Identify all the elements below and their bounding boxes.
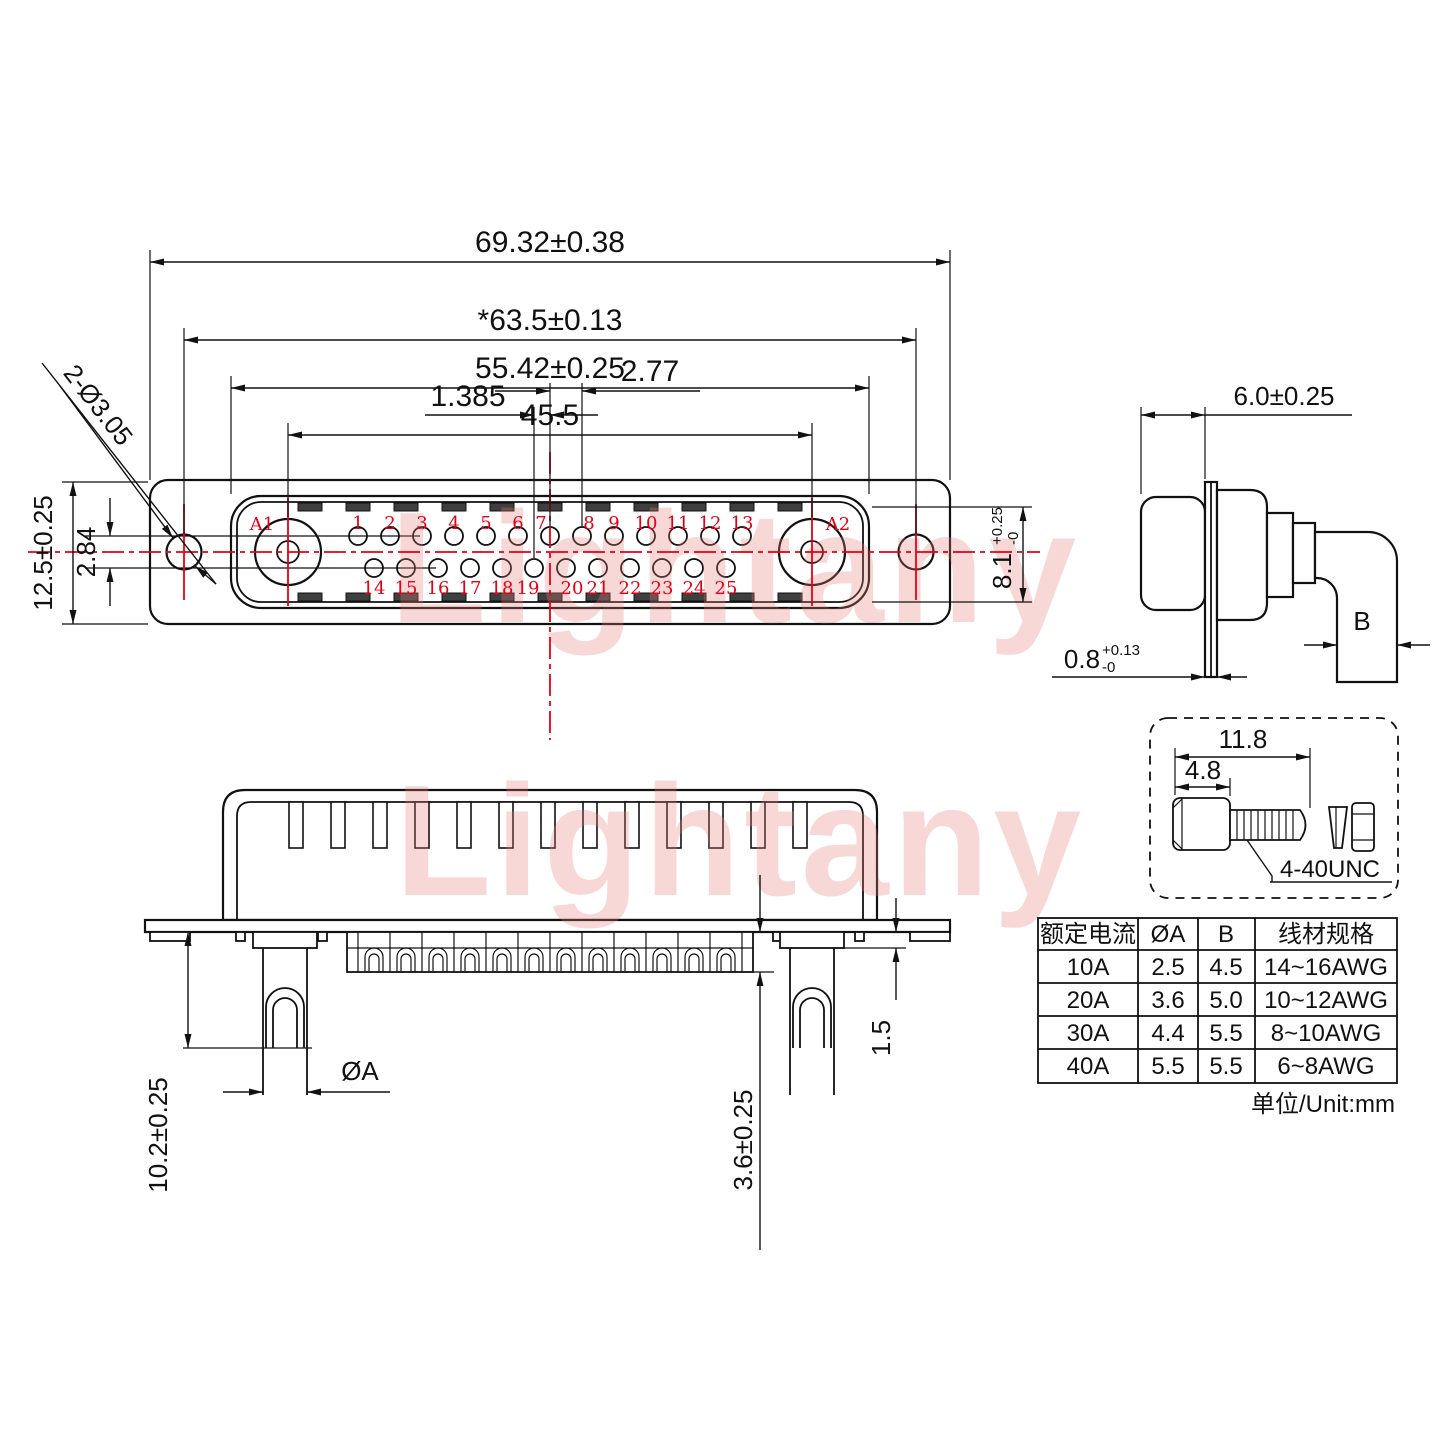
svg-text:18: 18 xyxy=(491,578,514,599)
svg-text:A1: A1 xyxy=(249,514,274,535)
dim-flange-height: 12.5±0.25 xyxy=(28,495,58,610)
svg-text:11: 11 xyxy=(667,513,690,534)
dim-pin-diameter: ØA xyxy=(341,1056,379,1086)
technical-drawing-page: Lightany A1 A2 1 2 3 4 5 6 7 8 9 10 11 1… xyxy=(0,0,1440,1440)
screw-detail: 11.8 4.8 4-40UNC xyxy=(1150,718,1398,898)
svg-text:20: 20 xyxy=(561,578,584,599)
svg-text:6: 6 xyxy=(512,513,523,534)
dim-mount-hole-span: *63.5±0.13 xyxy=(478,304,623,337)
bottom-view: Lightany 10.2±0.25 ØA 3.6±0.25 xyxy=(143,753,1085,1250)
svg-text:3: 3 xyxy=(416,513,427,534)
svg-text:5.5: 5.5 xyxy=(1209,1020,1242,1047)
dim-terminal-width: B xyxy=(1353,606,1370,636)
dim-overall-width: 69.32±0.38 xyxy=(475,226,625,259)
svg-text:5.0: 5.0 xyxy=(1209,987,1242,1014)
svg-text:21: 21 xyxy=(587,578,610,599)
svg-text:1: 1 xyxy=(352,513,363,534)
svg-text:15: 15 xyxy=(395,578,418,599)
svg-text:5.5: 5.5 xyxy=(1209,1053,1242,1080)
screw-geometry xyxy=(1173,798,1374,851)
barrel-part xyxy=(1352,803,1374,851)
svg-text:10: 10 xyxy=(635,513,658,534)
side-view-geometry xyxy=(1141,482,1397,682)
dim-row-stagger: 1.385 xyxy=(430,380,505,413)
svg-text:22: 22 xyxy=(619,578,642,599)
svg-text:5.5: 5.5 xyxy=(1151,1053,1184,1080)
svg-text:19: 19 xyxy=(517,578,540,599)
spec-table: 额定电流 ØA B 线材规格 10A 2.5 4.5 14~16AWG 20A … xyxy=(1038,918,1397,1118)
dim-shoulder: 1.5 xyxy=(866,1020,896,1056)
svg-text:20A: 20A xyxy=(1067,987,1110,1014)
svg-text:40A: 40A xyxy=(1067,1053,1110,1080)
svg-text:A2: A2 xyxy=(825,514,850,535)
svg-text:0.8: 0.8 xyxy=(1064,644,1100,674)
dim-screw-head: 4.8 xyxy=(1185,755,1221,785)
svg-text:14: 14 xyxy=(363,578,386,599)
svg-text:2: 2 xyxy=(384,513,395,534)
dim-row-gap: 2.84 xyxy=(71,527,101,578)
dim-pin-pitch: 2.77 xyxy=(621,355,679,388)
svg-text:8.1: 8.1 xyxy=(987,553,1017,589)
connector-drawing: Lightany A1 A2 1 2 3 4 5 6 7 8 9 10 11 1… xyxy=(0,0,1440,1440)
svg-text:10A: 10A xyxy=(1067,954,1110,981)
svg-text:30A: 30A xyxy=(1067,1020,1110,1047)
svg-text:17: 17 xyxy=(459,578,482,599)
rivet-part xyxy=(1329,807,1347,848)
svg-text:线材规格: 线材规格 xyxy=(1278,921,1374,948)
svg-text:16: 16 xyxy=(427,578,450,599)
power-pin-right xyxy=(780,932,844,1095)
svg-text:8: 8 xyxy=(583,513,594,534)
front-view: Lightany A1 A2 1 2 3 4 5 6 7 8 9 10 11 1… xyxy=(28,226,1080,740)
svg-text:ØA: ØA xyxy=(1151,921,1186,948)
svg-text:+0.25: +0.25 xyxy=(989,507,1006,545)
dim-screw-length: 11.8 xyxy=(1219,724,1268,754)
svg-text:-0: -0 xyxy=(1005,532,1022,545)
svg-text:9: 9 xyxy=(608,513,619,534)
svg-text:5: 5 xyxy=(480,513,491,534)
dim-flange-thickness: 0.8 +0.13 -0 xyxy=(1064,642,1140,676)
dim-pin-length: 10.2±0.25 xyxy=(143,1077,173,1192)
power-pin-left xyxy=(253,932,317,1095)
svg-text:8~10AWG: 8~10AWG xyxy=(1271,1020,1382,1047)
dim-shell-depth: 6.0±0.25 xyxy=(1233,381,1334,411)
svg-text:2.5: 2.5 xyxy=(1151,954,1184,981)
thread-spec-label: 4-40UNC xyxy=(1280,856,1380,883)
side-view: 6.0±0.25 B 0.8 +0.13 -0 xyxy=(1052,381,1430,682)
svg-text:4.4: 4.4 xyxy=(1151,1020,1184,1047)
svg-text:+0.13: +0.13 xyxy=(1102,642,1140,659)
svg-text:23: 23 xyxy=(651,578,674,599)
unit-note: 单位/Unit:mm xyxy=(1251,1091,1395,1118)
svg-text:25: 25 xyxy=(715,578,738,599)
svg-text:B: B xyxy=(1218,921,1234,948)
svg-text:13: 13 xyxy=(731,513,754,534)
svg-text:-0: -0 xyxy=(1102,659,1115,676)
svg-text:10~12AWG: 10~12AWG xyxy=(1264,987,1388,1014)
svg-text:3.6: 3.6 xyxy=(1151,987,1184,1014)
dim-cup-depth: 3.6±0.25 xyxy=(728,1089,758,1190)
svg-text:24: 24 xyxy=(683,578,706,599)
svg-text:4.5: 4.5 xyxy=(1209,954,1242,981)
watermark-bottom: Lightany xyxy=(395,753,1085,929)
svg-text:7: 7 xyxy=(535,513,546,534)
svg-text:4: 4 xyxy=(448,513,459,534)
svg-text:14~16AWG: 14~16AWG xyxy=(1264,954,1388,981)
svg-text:额定电流: 额定电流 xyxy=(1040,921,1136,948)
svg-text:6~8AWG: 6~8AWG xyxy=(1277,1053,1374,1080)
svg-text:12: 12 xyxy=(699,513,722,534)
